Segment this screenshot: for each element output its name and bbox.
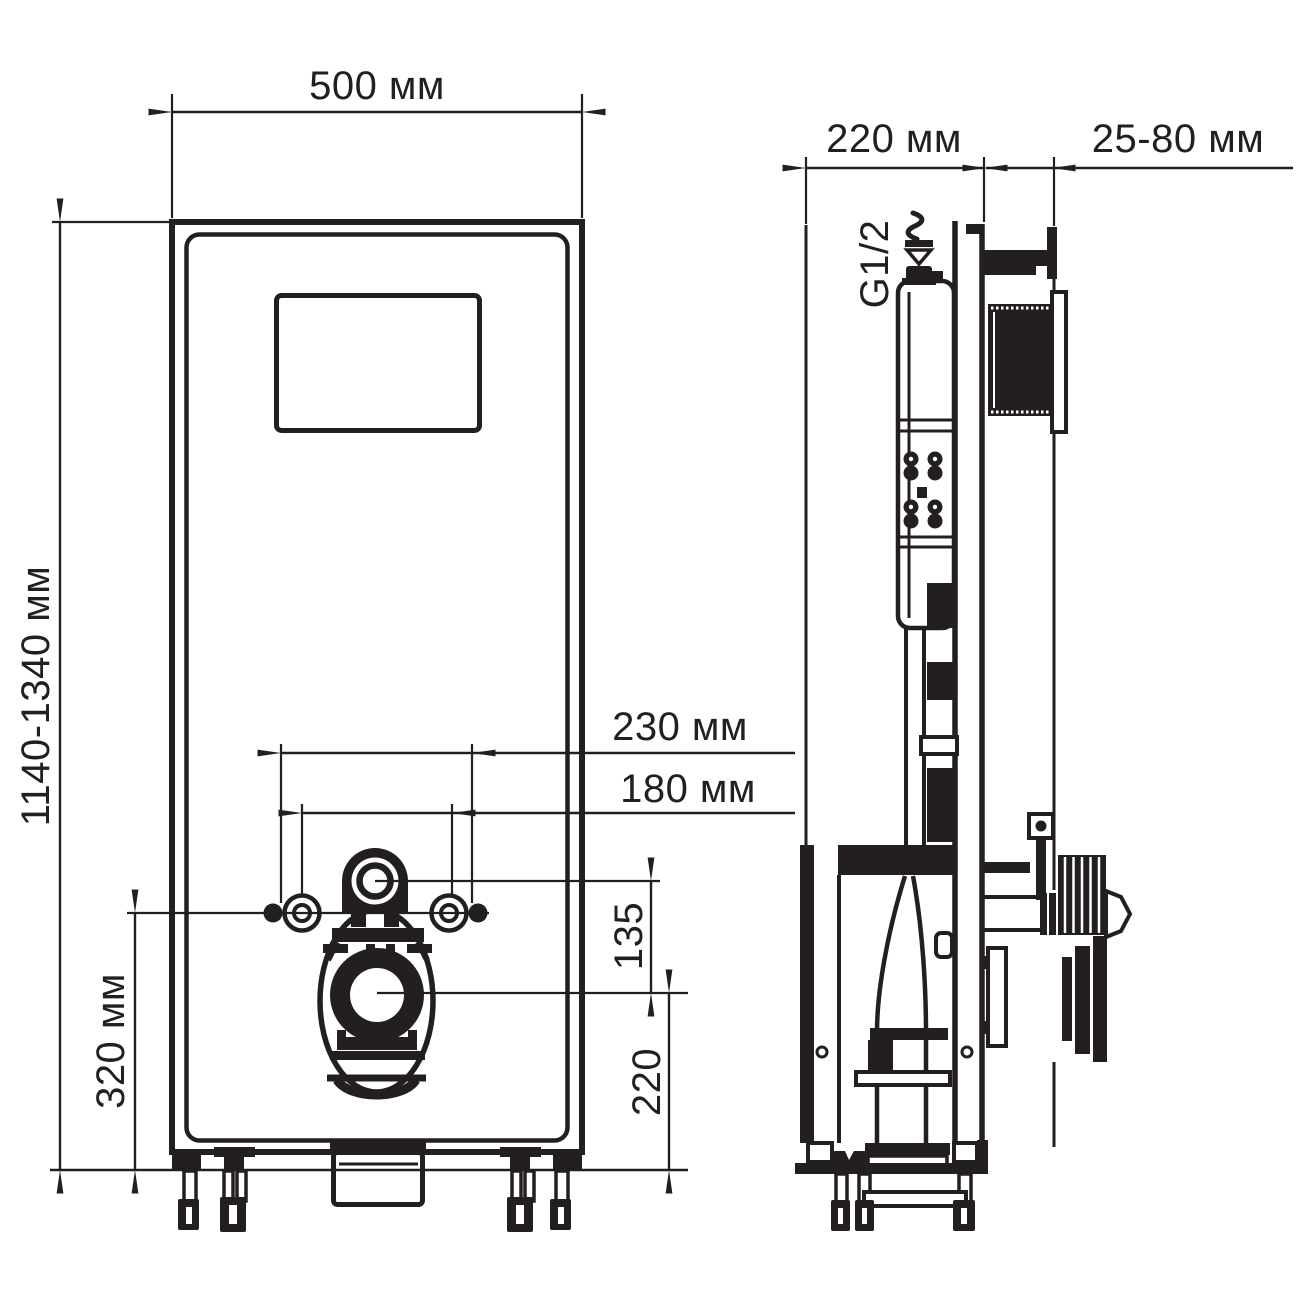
dim-outlet-height: 220 [627, 1048, 667, 1116]
installation-frame-drawing: 500 мм 1140-1340 мм 230 мм 180 мм 135 22… [0, 0, 1300, 1300]
label-water-inlet-thread: G1/2 [855, 220, 895, 309]
dim-anchor-height: 320 мм [91, 973, 131, 1109]
frame-feet-side [831, 1174, 975, 1231]
dim-anchor-span-outer: 230 мм [612, 707, 748, 747]
cistern [898, 213, 954, 628]
wall-bracket-bottom [982, 814, 1053, 900]
dim-wall-offset: 25-80 мм [1092, 119, 1264, 159]
dim-inlet-drop: 135 [609, 902, 649, 970]
frame-base-side [795, 1140, 988, 1231]
funnel-icon [907, 250, 931, 264]
front-view [172, 222, 582, 1232]
dim-side-depth: 220 мм [826, 119, 962, 159]
dim-front-height: 1140-1340 мм [16, 566, 56, 826]
dim-anchor-span-inner: 180 мм [620, 769, 756, 809]
flush-plate-window [277, 296, 480, 431]
side-view [795, 213, 1130, 1231]
water-supply-icon [905, 213, 933, 264]
wall-bracket-top [984, 227, 1066, 432]
toilet-flange [982, 936, 1107, 1062]
dim-front-width: 500 мм [309, 66, 445, 106]
drain-bend-pipe [856, 876, 952, 1143]
wall-anchor-block [988, 304, 1052, 416]
